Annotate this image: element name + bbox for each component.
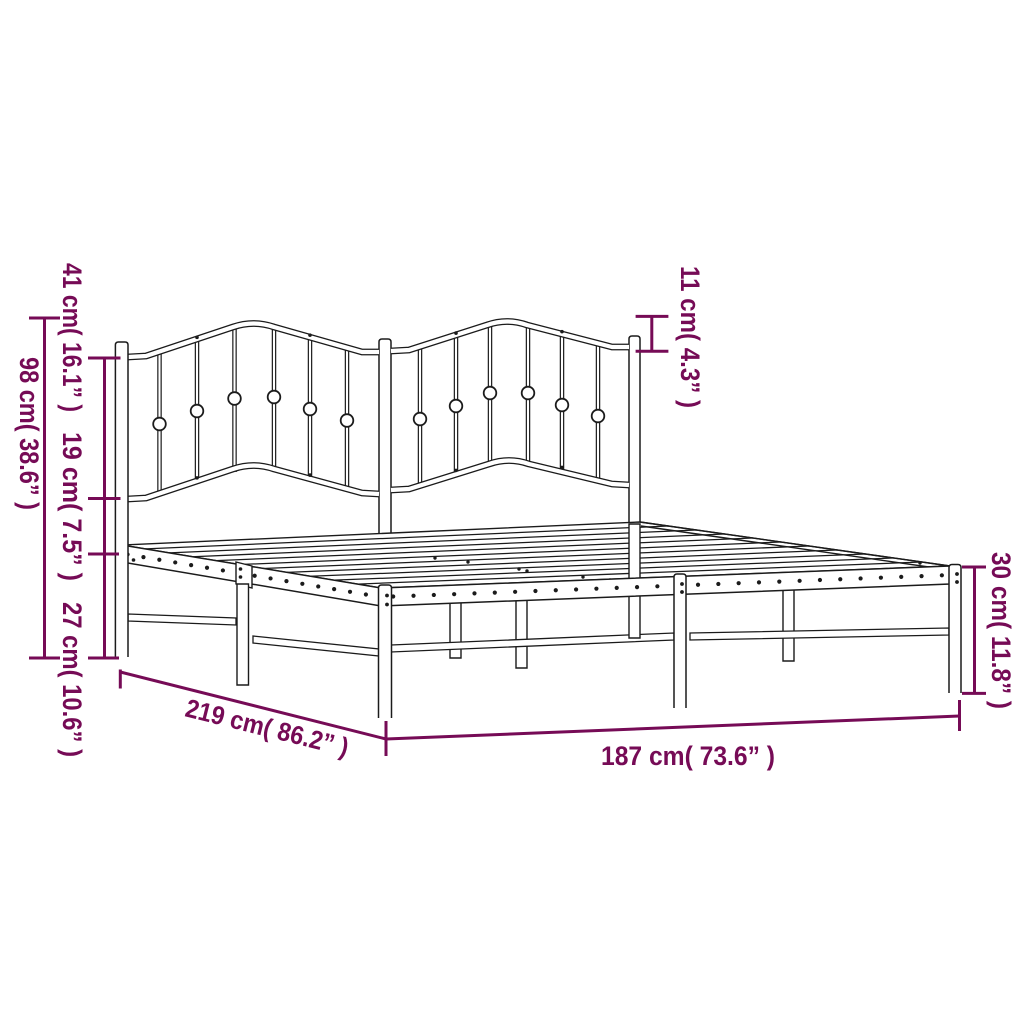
svg-text:27 cm( 10.6” ): 27 cm( 10.6” ) [57,602,88,757]
svg-text:11 cm( 4.3” ): 11 cm( 4.3” ) [675,266,706,408]
svg-text:98 cm( 38.6” ): 98 cm( 38.6” ) [14,357,45,510]
svg-text:19 cm( 7.5” ): 19 cm( 7.5” ) [57,432,88,581]
svg-text:30 cm( 11.8” ): 30 cm( 11.8” ) [986,552,1017,709]
svg-text:41 cm( 16.1” ): 41 cm( 16.1” ) [57,263,88,412]
svg-text:187 cm( 73.6” ): 187 cm( 73.6” ) [601,740,775,771]
